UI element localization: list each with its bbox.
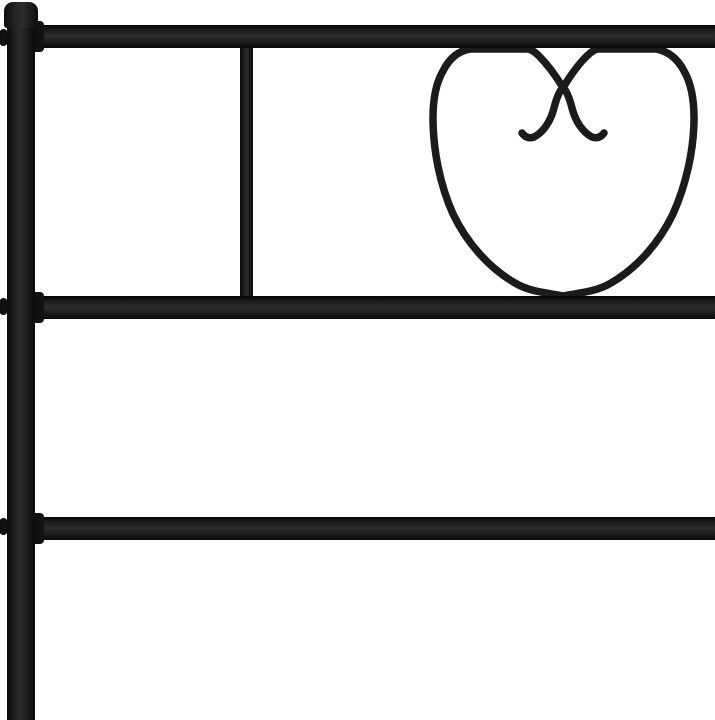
product-photo [0,0,715,720]
vertical-slat [240,40,253,302]
heart-ornament-icon [0,0,715,720]
middle-rail [18,296,715,319]
top-rail [18,25,715,48]
lower-rail [18,517,715,540]
heart-wire [433,49,694,296]
left-post [7,12,35,720]
post-cap [4,2,38,28]
